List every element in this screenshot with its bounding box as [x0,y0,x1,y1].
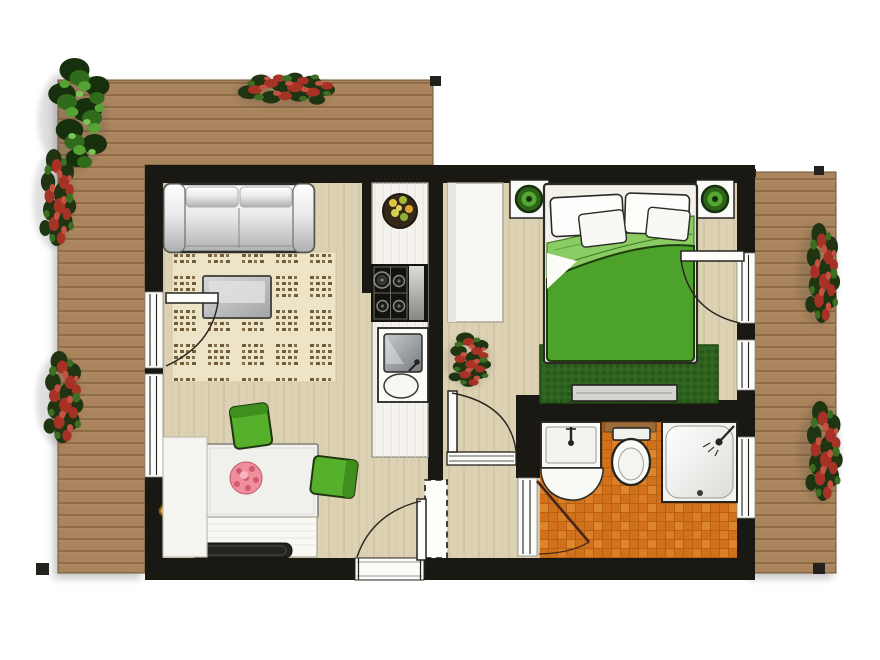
sideboard [190,517,317,558]
fruit-bowl [383,194,417,228]
floor-plan-canvas [0,0,880,660]
dining-chair-top [229,403,272,450]
toilet [612,428,650,485]
table-flower-centerpiece [230,462,262,494]
shower-drain [697,490,703,496]
pillow-front-left [578,209,627,247]
washbasin [541,422,601,468]
floor-plan-svg [0,0,880,660]
wall-bottom-right [424,558,755,580]
wall-left-upper [145,165,163,292]
window-bench [163,437,207,557]
wall-right-mullion1 [737,323,755,340]
bathroom-window [737,437,755,518]
entrance-threshold [355,558,424,580]
wardrobe [448,183,503,322]
double-bed [544,184,697,363]
nightstand-plant-left [516,186,542,212]
living-window [145,374,163,477]
shower [662,422,737,502]
bedroom-terrace-door-opening [737,253,755,323]
bedroom-window [737,340,755,390]
wall-left-lower [145,477,163,558]
cooktop [371,264,428,322]
media-bench [572,385,677,401]
wall-top [145,165,755,183]
dining-chair-right [310,455,358,498]
wall-right-lower [737,518,755,558]
kitchen-sink [378,328,428,402]
pillow-front-right [646,207,691,241]
living-balcony-door-opening [145,292,163,368]
wall-bottom-left [145,558,355,580]
kitchenette [371,183,428,457]
sofa [164,184,314,252]
wall-kitchen-hall [428,183,443,480]
nightstand-plant-right [702,186,728,212]
service-shaft [425,480,447,558]
wall-right-upper [737,165,755,253]
